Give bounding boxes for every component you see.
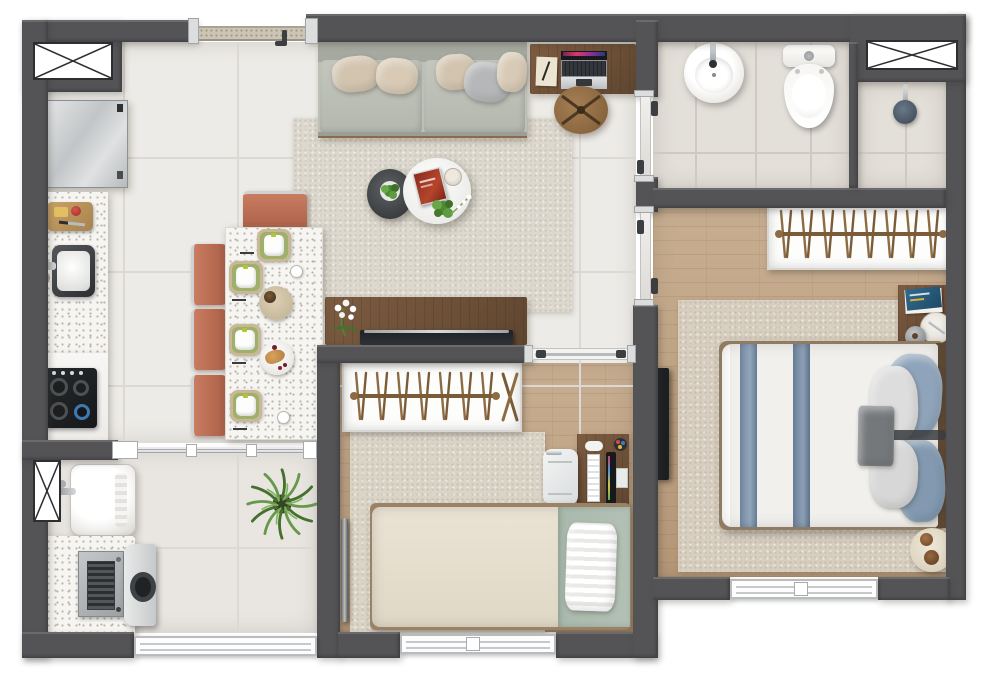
openings <box>0 0 1000 684</box>
entry-door-threshold <box>199 26 305 41</box>
shaft-x-icon <box>33 460 61 522</box>
laundry-door-connector <box>246 444 257 457</box>
laundry-door-connector <box>186 444 197 457</box>
floor-plan <box>0 0 1000 684</box>
bedroom2-window <box>400 634 556 654</box>
door-cap <box>634 175 654 182</box>
door-cap <box>634 299 654 306</box>
laundry-door-frame <box>303 441 317 459</box>
entry-jamb <box>188 18 199 44</box>
bedroom2-door-handle-icon <box>536 350 546 358</box>
shaft-x-icon <box>33 42 113 80</box>
entry-door-handle-icon <box>275 41 287 46</box>
bathroom-door-handle-icon <box>637 160 644 174</box>
door-cap <box>627 345 636 363</box>
door-cap <box>634 206 654 213</box>
laundry-door-frame <box>112 441 138 459</box>
bathroom-door-handle-icon <box>651 101 658 116</box>
master-window <box>730 579 878 599</box>
door-cap <box>634 90 654 97</box>
master-door-handle-icon <box>637 220 644 234</box>
shaft-x-icon <box>866 40 958 70</box>
bedroom2-door-track <box>532 348 629 360</box>
entry-jamb <box>305 18 318 44</box>
laundry-door-track <box>138 447 306 454</box>
laundry-window <box>134 636 317 656</box>
master-door-handle-icon <box>651 278 658 294</box>
bedroom2-door-handle-icon <box>616 350 626 358</box>
